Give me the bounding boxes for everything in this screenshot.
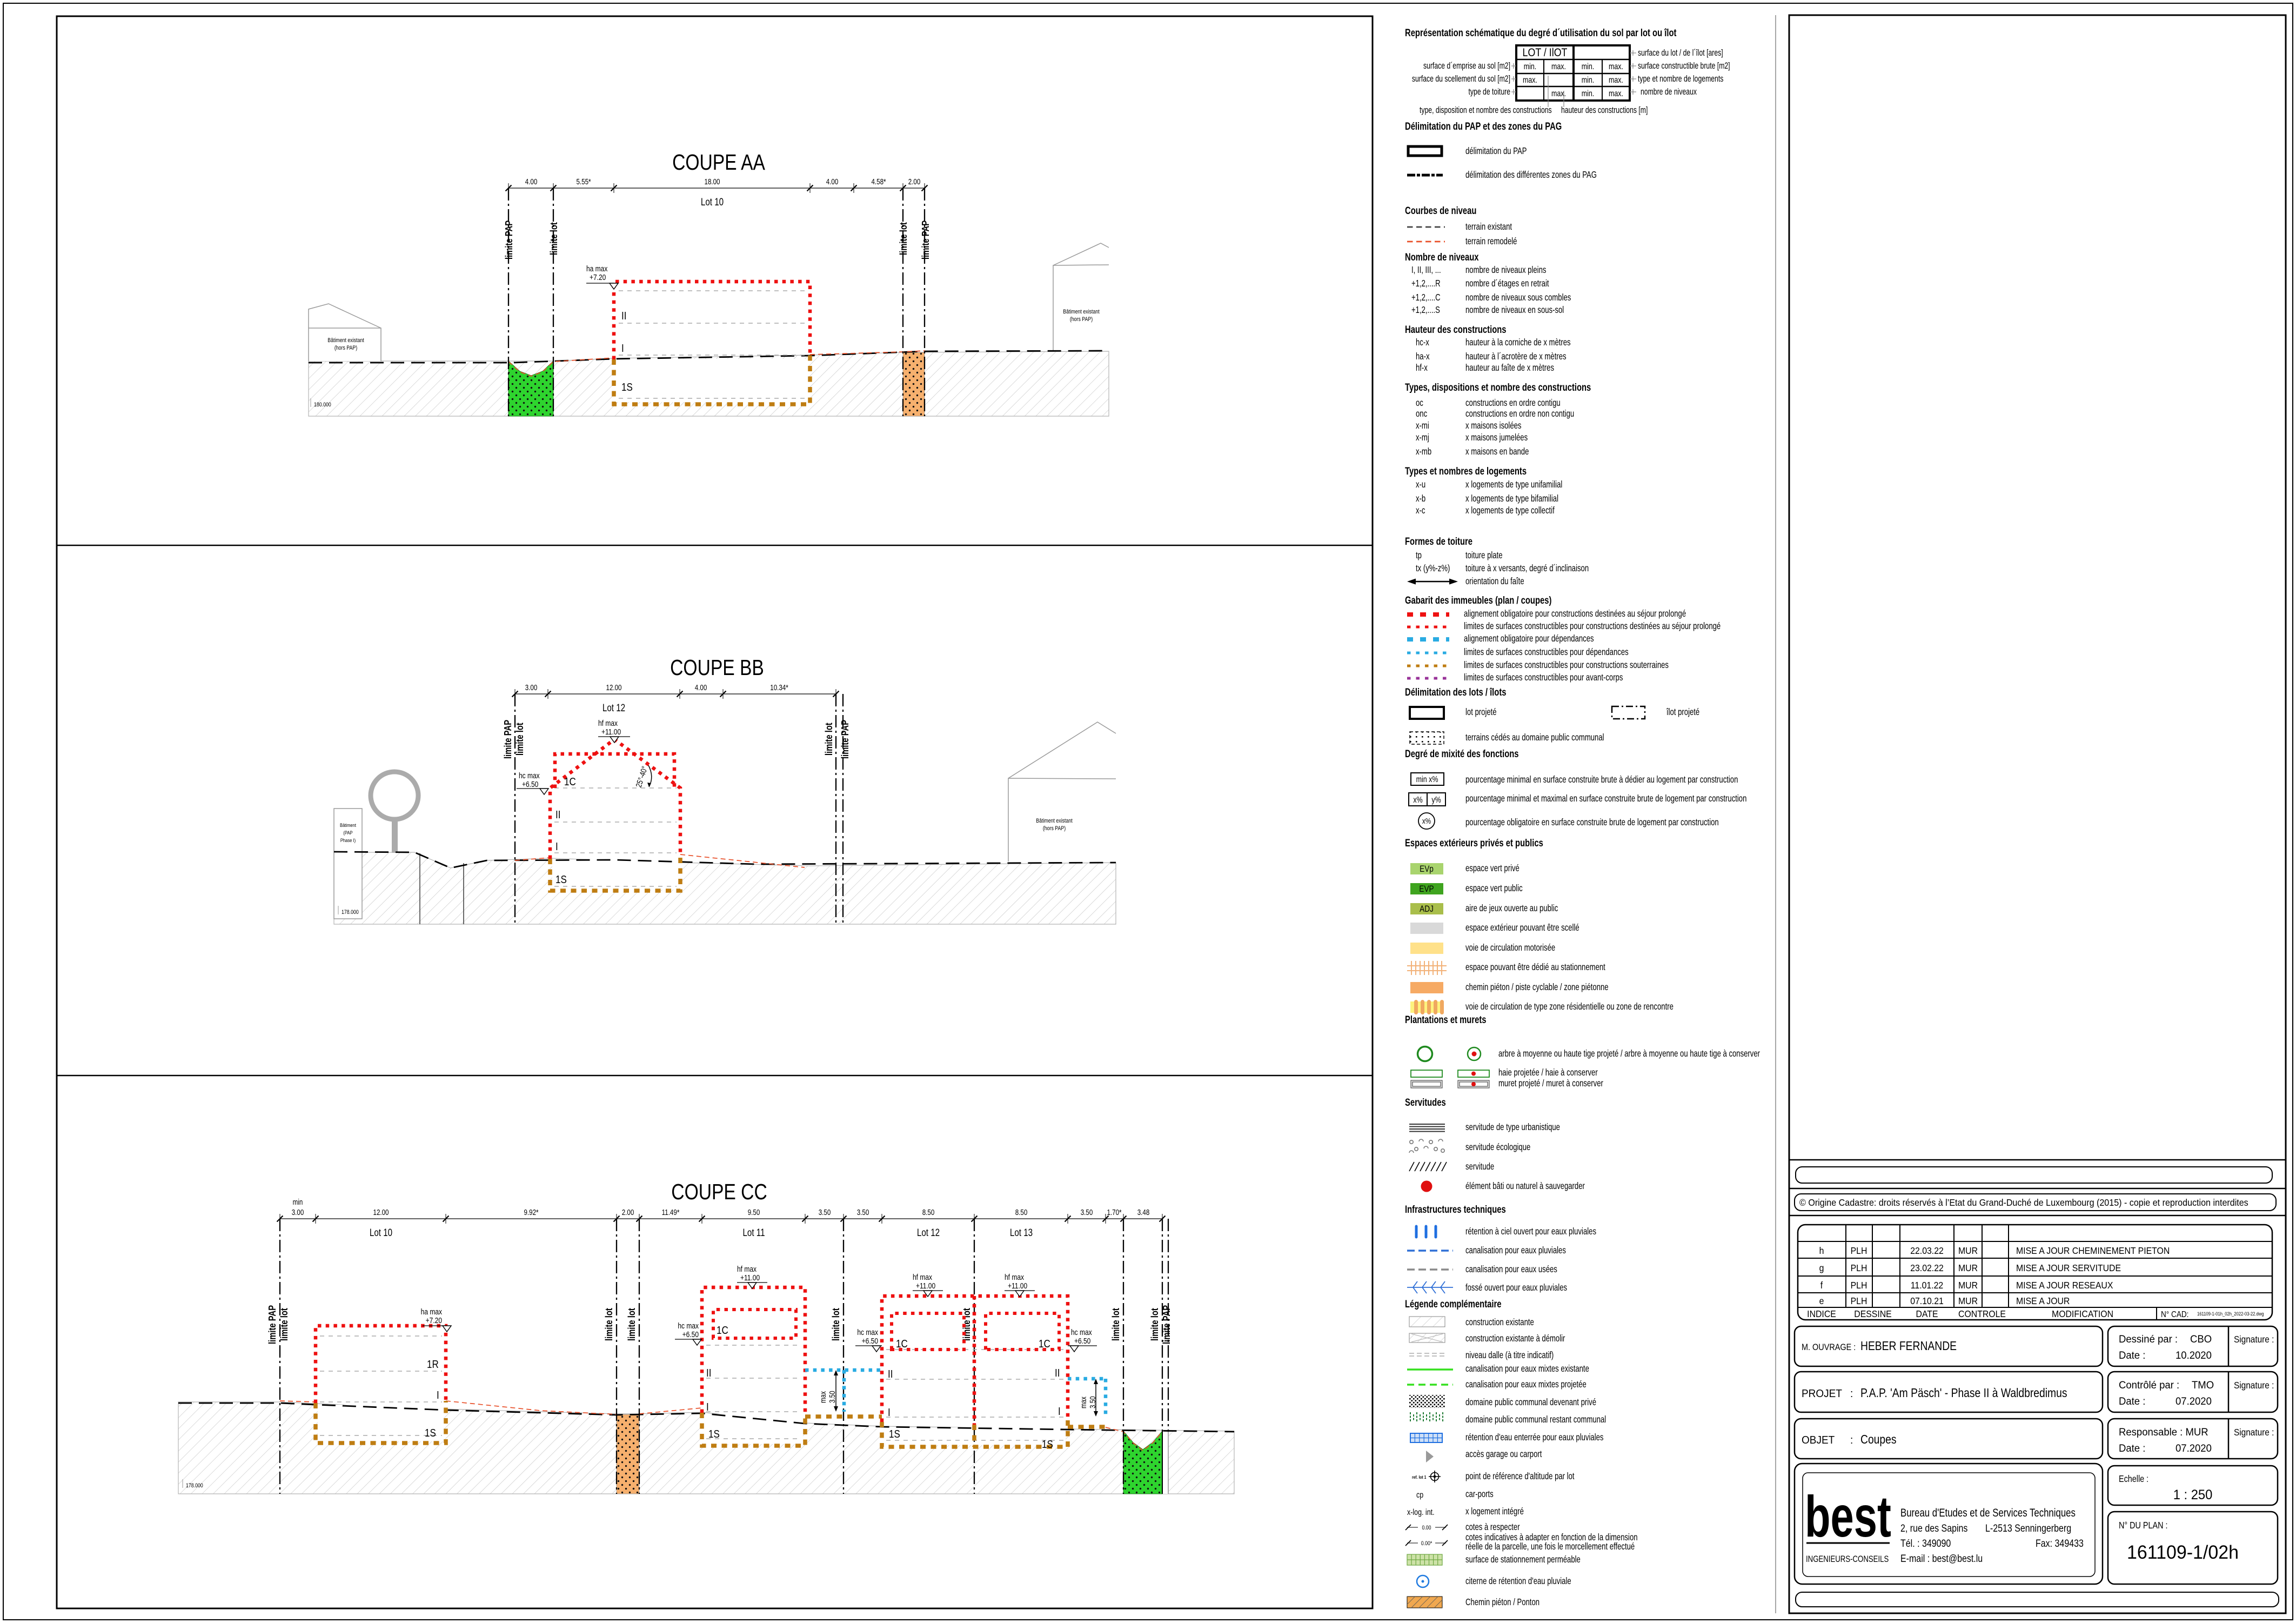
svg-text:Bâtiment existant: Bâtiment existant xyxy=(1036,818,1073,824)
svg-text:Bâtiment existant: Bâtiment existant xyxy=(327,337,364,344)
svg-text:muret projeté / muret à conser: muret projeté / muret à conserver xyxy=(1498,1078,1603,1088)
svg-text::: : xyxy=(1850,1388,1853,1400)
svg-text:N° DU PLAN :: N° DU PLAN : xyxy=(2119,1520,2167,1531)
svg-text:07.2020: 07.2020 xyxy=(2175,1396,2212,1408)
svg-text:HEBER FERNANDE: HEBER FERNANDE xyxy=(1860,1340,1957,1353)
svg-text:domaine public communal devena: domaine public communal devenant privé xyxy=(1465,1397,1596,1407)
svg-text:+11.00: +11.00 xyxy=(740,1273,760,1283)
svg-text:PROJET: PROJET xyxy=(1802,1388,1842,1400)
svg-text:Bâtiment existant: Bâtiment existant xyxy=(1063,309,1100,315)
svg-text:II: II xyxy=(1055,1367,1060,1379)
svg-text:Espaces extérieurs privés et p: Espaces extérieurs privés et publics xyxy=(1405,837,1543,849)
svg-text::: : xyxy=(1850,1434,1853,1447)
svg-text:18.00: 18.00 xyxy=(704,177,720,186)
svg-text:point de référence d'altitude: point de référence d'altitude par lot xyxy=(1465,1471,1575,1481)
svg-text:DESSINE: DESSINE xyxy=(1854,1308,1891,1319)
svg-text:I: I xyxy=(437,1389,439,1401)
svg-text:limite lot: limite lot xyxy=(548,222,559,255)
svg-text:type, disposition et nombre de: type, disposition et nombre des construc… xyxy=(1420,105,1552,115)
svg-text:min: min xyxy=(293,1198,303,1207)
svg-text:max.: max. xyxy=(1609,76,1623,85)
svg-text:espace vert public: espace vert public xyxy=(1465,883,1523,893)
svg-text:min.: min. xyxy=(1582,76,1595,85)
svg-text:P.A.P. 'Am Päsch' - Phase II à: P.A.P. 'Am Päsch' - Phase II à Waldbredi… xyxy=(1860,1387,2067,1400)
svg-text:servitude écologique: servitude écologique xyxy=(1465,1142,1530,1152)
svg-text:rétention d'eau enterrée pour: rétention d'eau enterrée pour eaux pluvi… xyxy=(1465,1432,1604,1442)
svg-text:servitude: servitude xyxy=(1465,1161,1494,1172)
svg-text:1S: 1S xyxy=(555,873,567,886)
svg-text:Légende complémentaire: Légende complémentaire xyxy=(1405,1298,1501,1310)
svg-text:max: max xyxy=(819,1391,828,1403)
svg-text:hc max: hc max xyxy=(1071,1328,1092,1337)
svg-text:CONTROLE: CONTROLE xyxy=(1958,1308,2006,1319)
svg-text:Hauteur des constructions: Hauteur des constructions xyxy=(1405,324,1507,335)
svg-text:2.00: 2.00 xyxy=(908,177,921,186)
svg-text:arbre à moyenne ou haute tige: arbre à moyenne ou haute tige projeté / … xyxy=(1498,1048,1760,1059)
svg-text:limite lot: limite lot xyxy=(1149,1308,1160,1341)
svg-text:cp: cp xyxy=(1416,1491,1423,1500)
svg-text:4.00: 4.00 xyxy=(695,683,707,692)
svg-text:180.000: 180.000 xyxy=(314,402,331,408)
svg-text:Degré de mixité des fonctions: Degré de mixité des fonctions xyxy=(1405,748,1519,759)
svg-text:11.01.22: 11.01.22 xyxy=(1911,1280,1943,1291)
svg-text:Lot 13: Lot 13 xyxy=(1010,1226,1033,1238)
svg-text:h: h xyxy=(1819,1245,1824,1256)
svg-text:citerne de rétention d'eau plu: citerne de rétention d'eau pluviale xyxy=(1465,1576,1571,1586)
svg-text:MODIFICATION: MODIFICATION xyxy=(2052,1308,2113,1319)
svg-text:ha max: ha max xyxy=(586,264,608,273)
svg-text:MUR: MUR xyxy=(1958,1280,1978,1291)
svg-text:+11.00: +11.00 xyxy=(601,727,621,737)
svg-text:EVp: EVp xyxy=(1420,864,1434,874)
svg-text:pourcentage minimal en surface: pourcentage minimal en surface construit… xyxy=(1465,774,1738,785)
svg-text:nombre de niveaux: nombre de niveaux xyxy=(1641,87,1697,97)
svg-text:Lot 10: Lot 10 xyxy=(701,196,724,208)
svg-text:limites de surfaces constructi: limites de surfaces constructibles pour … xyxy=(1464,672,1623,683)
svg-text:x maisons en bande: x maisons en bande xyxy=(1465,446,1529,457)
svg-text:limite lot: limite lot xyxy=(626,1308,637,1341)
svg-text:I: I xyxy=(888,1406,891,1419)
svg-text:1S: 1S xyxy=(708,1428,720,1440)
svg-text:I: I xyxy=(621,342,624,355)
svg-text:canalisation pour eaux usées: canalisation pour eaux usées xyxy=(1465,1264,1557,1274)
svg-text:N° CAD:: N° CAD: xyxy=(2161,1310,2188,1319)
svg-text:1R: 1R xyxy=(427,1358,439,1371)
svg-text:x logement intégré: x logement intégré xyxy=(1465,1506,1524,1517)
svg-text:pourcentage obligatoire en sur: pourcentage obligatoire en surface const… xyxy=(1465,817,1719,827)
svg-text:Echelle :: Echelle : xyxy=(2119,1474,2148,1485)
svg-text:nombre de niveaux sous combles: nombre de niveaux sous combles xyxy=(1465,292,1571,303)
svg-text:accès garage ou carport: accès garage ou carport xyxy=(1465,1449,1542,1459)
svg-text:1S: 1S xyxy=(425,1427,436,1439)
svg-text:+1,2,....C: +1,2,....C xyxy=(1411,292,1441,303)
svg-text:e: e xyxy=(1819,1295,1824,1306)
svg-text:+6.50: +6.50 xyxy=(522,780,539,789)
svg-text:max.: max. xyxy=(1523,76,1537,85)
svg-text:Signature :: Signature : xyxy=(2234,1427,2274,1438)
svg-text:limite PAP: limite PAP xyxy=(266,1305,278,1344)
svg-text:L-2513 Senningerberg: L-2513 Senningerberg xyxy=(1985,1522,2071,1534)
svg-text:f: f xyxy=(1820,1280,1823,1291)
svg-text:canalisation pour eaux pluvial: canalisation pour eaux pluviales xyxy=(1465,1245,1566,1255)
svg-text:limites de surfaces constructi: limites de surfaces constructibles pour … xyxy=(1464,647,1629,657)
svg-text:12.00: 12.00 xyxy=(373,1208,389,1217)
svg-text:Date :: Date : xyxy=(2119,1350,2145,1362)
svg-text:délimitation des différentes z: délimitation des différentes zones du PA… xyxy=(1465,170,1597,180)
svg-text:161109-1-01h_02h_2022-03-22.dw: 161109-1-01h_02h_2022-03-22.dwg xyxy=(2197,1311,2264,1317)
svg-text:PLH: PLH xyxy=(1851,1245,1867,1256)
svg-text:terrain remodelé: terrain remodelé xyxy=(1465,236,1517,246)
svg-text:limites de surfaces constructi: limites de surfaces constructibles pour … xyxy=(1464,621,1721,631)
svg-text:Bureau d'Etudes et de Services: Bureau d'Etudes et de Services Technique… xyxy=(1900,1507,2076,1519)
svg-text:x logements de type unifamilia: x logements de type unifamilial xyxy=(1465,479,1562,490)
svg-text:limite lot: limite lot xyxy=(823,723,834,756)
svg-text:MUR: MUR xyxy=(1958,1295,1978,1306)
svg-text:CBO: CBO xyxy=(2190,1334,2212,1346)
svg-text:alignement obligatoire pour dé: alignement obligatoire pour dépendances xyxy=(1464,633,1594,644)
svg-text:MUR: MUR xyxy=(1958,1245,1978,1256)
svg-text:1C: 1C xyxy=(717,1324,728,1337)
svg-text:espace extérieur pouvant être: espace extérieur pouvant être scellé xyxy=(1465,923,1579,933)
svg-text:tx (y%-z%): tx (y%-z%) xyxy=(1416,563,1450,573)
svg-text:161109-1/02h: 161109-1/02h xyxy=(2127,1542,2239,1564)
svg-text:niveau dalle (à titre indicati: niveau dalle (à titre indicatif) xyxy=(1465,1350,1554,1360)
svg-text:surface du scellement du sol [: surface du scellement du sol [m2] xyxy=(1412,74,1510,84)
svg-text:Courbes de niveau: Courbes de niveau xyxy=(1405,205,1476,216)
svg-text:5.55*: 5.55* xyxy=(576,177,591,186)
svg-text:Dessiné par :: Dessiné par : xyxy=(2119,1334,2178,1346)
svg-text:Contrôlé par :: Contrôlé par : xyxy=(2119,1380,2179,1392)
svg-text:(PAP: (PAP xyxy=(343,830,352,836)
svg-text:10.34*: 10.34* xyxy=(770,683,788,692)
svg-text:4.58*: 4.58* xyxy=(871,177,886,186)
svg-text:oc: oc xyxy=(1416,398,1423,408)
svg-text:chemin piéton / piste cyclable: chemin piéton / piste cyclable / zone pi… xyxy=(1465,982,1609,992)
svg-text:limite PAP: limite PAP xyxy=(503,221,514,259)
svg-text:Responsable : MUR: Responsable : MUR xyxy=(2119,1427,2208,1439)
svg-text:I: I xyxy=(555,840,558,853)
svg-text:canalisation pour eaux mixtes: canalisation pour eaux mixtes projetée xyxy=(1465,1379,1587,1390)
svg-text:x-b: x-b xyxy=(1416,493,1425,504)
svg-text:espace pouvant être dédié au s: espace pouvant être dédié au stationneme… xyxy=(1465,962,1605,972)
svg-text:+11.00: +11.00 xyxy=(916,1281,936,1291)
svg-text:MISE A JOUR CHEMINEMENT PIETON: MISE A JOUR CHEMINEMENT PIETON xyxy=(2016,1245,2170,1256)
svg-text:limite PAP: limite PAP xyxy=(1161,1305,1172,1344)
svg-text:1S: 1S xyxy=(1042,1438,1053,1451)
svg-text:(hors PAP): (hors PAP) xyxy=(334,345,357,351)
svg-text:1S: 1S xyxy=(889,1428,900,1440)
svg-text:Fax: 349433: Fax: 349433 xyxy=(2036,1538,2084,1549)
svg-text:terrain existant: terrain existant xyxy=(1465,222,1512,232)
svg-text:x-mb: x-mb xyxy=(1416,446,1431,457)
svg-text:best: best xyxy=(1805,1484,1891,1549)
svg-text:+1,2,....R: +1,2,....R xyxy=(1411,278,1441,289)
svg-text:Lot 12: Lot 12 xyxy=(917,1226,940,1238)
svg-text:toiture à x versants, degré d´: toiture à x versants, degré d´inclinaiso… xyxy=(1465,563,1589,573)
svg-text:limite lot: limite lot xyxy=(830,1308,841,1341)
svg-text:Types et nombres de logements: Types et nombres de logements xyxy=(1405,465,1527,477)
svg-text:fossé ouvert pour eaux pluvial: fossé ouvert pour eaux pluviales xyxy=(1465,1283,1567,1293)
svg-text:max.: max. xyxy=(1609,62,1623,72)
svg-text:surface du lot / de l´îlot [ar: surface du lot / de l´îlot [ares] xyxy=(1638,48,1723,58)
svg-text:Nombre de niveaux: Nombre de niveaux xyxy=(1405,251,1479,263)
svg-text:réelle de la parcelle, une foi: réelle de la parcelle, une fois le morce… xyxy=(1465,1541,1635,1552)
svg-text:x-mi: x-mi xyxy=(1416,420,1429,431)
svg-text:MISE A JOUR RESEAUX: MISE A JOUR RESEAUX xyxy=(2016,1280,2113,1291)
svg-text:EVP: EVP xyxy=(1419,884,1434,894)
svg-text:Tél. : 349090: Tél. : 349090 xyxy=(1900,1538,1951,1549)
svg-text:3.50: 3.50 xyxy=(828,1391,837,1403)
svg-text:Servitudes: Servitudes xyxy=(1405,1097,1446,1108)
svg-text:Signature :: Signature : xyxy=(2234,1380,2274,1391)
svg-text:min.: min. xyxy=(1582,89,1595,99)
svg-text:Délimitation du PAP et des zon: Délimitation du PAP et des zones du PAG xyxy=(1405,121,1562,132)
svg-text:construction existante: construction existante xyxy=(1465,1317,1534,1327)
svg-text:aire de jeux ouverte au public: aire de jeux ouverte au public xyxy=(1465,903,1558,913)
svg-text:surface d´emprise au sol [m2]: surface d´emprise au sol [m2] xyxy=(1423,61,1510,71)
svg-text:hauteur au faîte de x mètres: hauteur au faîte de x mètres xyxy=(1465,363,1554,373)
svg-text:Coupes: Coupes xyxy=(1860,1433,1897,1447)
svg-text:07.2020: 07.2020 xyxy=(2175,1443,2212,1455)
svg-text:x logements de type bifamilial: x logements de type bifamilial xyxy=(1465,493,1558,504)
svg-text:tp: tp xyxy=(1416,550,1422,560)
svg-text:x maisons jumelées: x maisons jumelées xyxy=(1465,432,1528,443)
svg-text:Date :: Date : xyxy=(2119,1396,2145,1408)
svg-text:limite PAP: limite PAP xyxy=(839,720,851,759)
svg-text:Lot 11: Lot 11 xyxy=(742,1226,765,1238)
svg-text:hauteur à l´acrotère de x mètr: hauteur à l´acrotère de x mètres xyxy=(1465,351,1567,362)
svg-text:12.00: 12.00 xyxy=(606,683,621,692)
svg-text:3.00: 3.00 xyxy=(292,1208,304,1217)
svg-text:orientation du faîte: orientation du faîte xyxy=(1465,576,1524,586)
svg-text:hauteur des constructions [m]: hauteur des constructions [m] xyxy=(1561,105,1648,115)
svg-text:ha-x: ha-x xyxy=(1416,351,1430,362)
svg-text:Date :: Date : xyxy=(2119,1443,2145,1455)
svg-text:haie projetée / haie à conserv: haie projetée / haie à conserver xyxy=(1498,1067,1598,1078)
svg-text:voie de circulation de type zo: voie de circulation de type zone résiden… xyxy=(1465,1001,1674,1012)
svg-text:Infrastructures techniques: Infrastructures techniques xyxy=(1405,1204,1506,1215)
svg-text:espace vert privé: espace vert privé xyxy=(1465,863,1519,873)
svg-text:I: I xyxy=(1058,1405,1061,1418)
svg-text:COUPE AA: COUPE AA xyxy=(672,150,765,175)
svg-text:limite lot: limite lot xyxy=(603,1308,614,1341)
svg-text:surface de stationnement permé: surface de stationnement perméable xyxy=(1465,1554,1581,1565)
svg-text:COUPE BB: COUPE BB xyxy=(670,655,764,680)
svg-text:cotes à respecter: cotes à respecter xyxy=(1465,1522,1520,1532)
svg-text:INGENIEURS-CONSEILS: INGENIEURS-CONSEILS xyxy=(1806,1554,1889,1565)
svg-text:constructions en ordre contigu: constructions en ordre contigu xyxy=(1465,398,1561,408)
svg-text:M. OUVRAGE :: M. OUVRAGE : xyxy=(1802,1343,1856,1352)
svg-text:© Origine Cadastre: droits rés: © Origine Cadastre: droits réservés à l’… xyxy=(1799,1197,2248,1208)
svg-text:11.49*: 11.49* xyxy=(662,1208,680,1217)
svg-text:x%: x% xyxy=(1413,796,1423,805)
svg-text:Lot 10: Lot 10 xyxy=(370,1226,392,1238)
svg-text:ref. lot 1: ref. lot 1 xyxy=(1412,1474,1427,1480)
svg-text:délimitation du PAP: délimitation du PAP xyxy=(1465,146,1527,156)
svg-text:8.50: 8.50 xyxy=(1015,1208,1028,1217)
svg-text:LOT / IlOT: LOT / IlOT xyxy=(1523,46,1568,59)
svg-text:x%: x% xyxy=(1422,817,1431,826)
svg-text:Types, dispositions et nombre: Types, dispositions et nombre des constr… xyxy=(1405,382,1591,393)
svg-text:0.00*: 0.00* xyxy=(1421,1540,1433,1547)
svg-text:domaine public communal restan: domaine public communal restant communal xyxy=(1465,1414,1606,1425)
svg-text:y%: y% xyxy=(1431,796,1441,805)
svg-text:+1,2,....S: +1,2,....S xyxy=(1411,305,1440,315)
svg-text:limite lot: limite lot xyxy=(1110,1308,1121,1341)
svg-text:x-mj: x-mj xyxy=(1416,432,1429,443)
svg-text:max.: max. xyxy=(1551,62,1566,72)
svg-text:I, II, III, ...: I, II, III, ... xyxy=(1411,265,1441,275)
svg-text:hf max: hf max xyxy=(598,719,618,728)
svg-text:construction existante à démol: construction existante à démolir xyxy=(1465,1333,1565,1344)
svg-text:hauteur à la corniche de x mèt: hauteur à la corniche de x mètres xyxy=(1465,337,1571,348)
svg-text:nombre de niveaux pleins: nombre de niveaux pleins xyxy=(1465,265,1547,275)
svg-text:nombre d´étages en retrait: nombre d´étages en retrait xyxy=(1465,278,1549,289)
svg-text:ha max: ha max xyxy=(421,1307,443,1317)
svg-text:hf-x: hf-x xyxy=(1416,363,1428,373)
svg-text:(hors PAP): (hors PAP) xyxy=(1070,316,1093,323)
svg-text:+6.50: +6.50 xyxy=(682,1330,699,1339)
svg-text:x-c: x-c xyxy=(1416,505,1425,516)
svg-text:3.48: 3.48 xyxy=(1137,1208,1150,1217)
svg-text:9.92*: 9.92* xyxy=(524,1208,538,1217)
svg-text:hc max: hc max xyxy=(678,1321,699,1331)
svg-text:MISE A JOUR: MISE A JOUR xyxy=(2016,1295,2070,1306)
svg-text:voie de circulation motorisée: voie de circulation motorisée xyxy=(1465,943,1555,953)
svg-text:23.02.22: 23.02.22 xyxy=(1910,1263,1944,1273)
svg-text:3.50: 3.50 xyxy=(1081,1208,1093,1217)
svg-text:nombre de niveaux en sous-sol: nombre de niveaux en sous-sol xyxy=(1465,305,1564,315)
svg-text:car-ports: car-ports xyxy=(1465,1489,1494,1499)
svg-text:II: II xyxy=(555,809,560,821)
svg-text:OBJET: OBJET xyxy=(1802,1434,1835,1447)
svg-text:îlot projeté: îlot projeté xyxy=(1666,707,1699,717)
svg-text:toiture plate: toiture plate xyxy=(1465,550,1503,560)
svg-text:0.00: 0.00 xyxy=(1422,1525,1431,1531)
svg-text:8.50: 8.50 xyxy=(922,1208,935,1217)
svg-text:4.00: 4.00 xyxy=(826,177,839,186)
svg-text:min x%: min x% xyxy=(1416,775,1438,785)
svg-text:10.2020: 10.2020 xyxy=(2175,1350,2212,1362)
svg-text:rétention à ciel ouvert pour e: rétention à ciel ouvert pour eaux pluvia… xyxy=(1465,1226,1596,1237)
svg-text:1 : 250: 1 : 250 xyxy=(2173,1487,2213,1502)
svg-text:TMO: TMO xyxy=(2192,1380,2214,1392)
svg-text:limite lot: limite lot xyxy=(514,723,525,756)
svg-text:hc-x: hc-x xyxy=(1416,337,1429,348)
svg-text:hc max: hc max xyxy=(519,771,540,780)
svg-text:Signature :: Signature : xyxy=(2234,1334,2274,1345)
svg-text:pourcentage minimal et maximal: pourcentage minimal et maximal en surfac… xyxy=(1465,793,1746,804)
svg-text:max: max xyxy=(1079,1397,1088,1408)
svg-text:II: II xyxy=(706,1367,711,1379)
svg-text:1C: 1C xyxy=(1039,1338,1050,1350)
svg-text:limites de surfaces constructi: limites de surfaces constructibles pour … xyxy=(1464,660,1669,670)
svg-text:1C: 1C xyxy=(896,1338,908,1350)
svg-text:Plantations et murets: Plantations et murets xyxy=(1405,1014,1487,1025)
svg-text:Formes de toiture: Formes de toiture xyxy=(1405,536,1472,547)
svg-text:3.00: 3.00 xyxy=(525,683,538,692)
svg-text:onc: onc xyxy=(1416,409,1427,419)
svg-text:hc max: hc max xyxy=(857,1328,878,1337)
svg-text:limite lot: limite lot xyxy=(898,222,909,255)
svg-text:MISE A JOUR SERVITUDE: MISE A JOUR SERVITUDE xyxy=(2016,1263,2121,1273)
svg-text:Lot 12: Lot 12 xyxy=(603,702,625,713)
svg-text:limite PAP: limite PAP xyxy=(920,221,931,259)
svg-text:x-u: x-u xyxy=(1416,479,1425,490)
svg-text:type de toiture: type de toiture xyxy=(1469,87,1510,97)
svg-text:min.: min. xyxy=(1524,62,1537,72)
svg-text:hf max: hf max xyxy=(913,1273,932,1282)
svg-text:1.70*: 1.70* xyxy=(1107,1208,1121,1217)
svg-text:3.50: 3.50 xyxy=(819,1208,831,1217)
svg-text:PLH: PLH xyxy=(1851,1295,1867,1306)
svg-text:(hors PAP): (hors PAP) xyxy=(1043,825,1066,832)
svg-text:x-log. int.: x-log. int. xyxy=(1407,1508,1435,1518)
svg-text:max.: max. xyxy=(1609,89,1623,99)
svg-text:DATE: DATE xyxy=(1916,1308,1938,1319)
svg-text:+11.00: +11.00 xyxy=(1008,1281,1028,1291)
svg-text:Chemin piéton / Ponton: Chemin piéton / Ponton xyxy=(1465,1597,1539,1607)
svg-text:3.50: 3.50 xyxy=(857,1208,869,1217)
svg-text:g: g xyxy=(1819,1263,1824,1273)
svg-text:type et nombre de logements: type et nombre de logements xyxy=(1638,74,1723,84)
svg-text:servitude de type urbanistique: servitude de type urbanistique xyxy=(1465,1122,1560,1132)
svg-text:hf max: hf max xyxy=(737,1265,757,1274)
svg-text:Bâtiment: Bâtiment xyxy=(340,822,357,828)
svg-text:+7.20: +7.20 xyxy=(426,1316,443,1325)
svg-text:COUPE CC: COUPE CC xyxy=(671,1179,767,1204)
svg-text:Gabarit des immeubles (plan /: Gabarit des immeubles (plan / coupes) xyxy=(1405,595,1551,606)
svg-text:9.50: 9.50 xyxy=(748,1208,760,1217)
svg-text:hf max: hf max xyxy=(1005,1273,1024,1282)
svg-text:surface constructible brute [m: surface constructible brute [m2] xyxy=(1638,61,1730,71)
svg-text:2, rue des Sapins: 2, rue des Sapins xyxy=(1900,1522,1967,1534)
svg-text:22.03.22: 22.03.22 xyxy=(1910,1245,1944,1256)
svg-text:I: I xyxy=(706,1401,709,1413)
svg-text:3.50: 3.50 xyxy=(1088,1396,1097,1408)
svg-text:min.: min. xyxy=(1582,62,1595,72)
svg-text:II: II xyxy=(621,310,626,322)
svg-text:limite lot: limite lot xyxy=(278,1308,290,1341)
svg-text:x maisons isolées: x maisons isolées xyxy=(1465,420,1522,431)
svg-text:INDICE: INDICE xyxy=(1807,1308,1836,1319)
svg-text:constructions en ordre non con: constructions en ordre non contigu xyxy=(1465,409,1574,419)
svg-text:E-mail : best@best.lu: E-mail : best@best.lu xyxy=(1900,1553,1983,1565)
svg-text:terrains cédés au domaine publ: terrains cédés au domaine public communa… xyxy=(1465,732,1604,743)
svg-text:MUR: MUR xyxy=(1958,1263,1978,1273)
svg-text:alignement obligatoire pour co: alignement obligatoire pour construction… xyxy=(1464,609,1686,619)
svg-text:+6.50: +6.50 xyxy=(862,1337,879,1346)
svg-text:PLH: PLH xyxy=(1851,1280,1867,1291)
svg-text:limite PAP: limite PAP xyxy=(502,720,513,759)
svg-text:Phase I): Phase I) xyxy=(340,837,356,843)
svg-text:Délimitation des lots / îlots: Délimitation des lots / îlots xyxy=(1405,686,1506,698)
svg-text:II: II xyxy=(888,1368,893,1380)
svg-text:+7.20: +7.20 xyxy=(590,273,606,282)
svg-text:x logements de type collectif: x logements de type collectif xyxy=(1465,505,1555,516)
svg-text:PLH: PLH xyxy=(1851,1263,1867,1273)
svg-text:ADJ: ADJ xyxy=(1420,904,1434,914)
svg-text:Représentation schématique du: Représentation schématique du degré d´ut… xyxy=(1405,27,1677,38)
svg-text:07.10.21: 07.10.21 xyxy=(1910,1295,1944,1306)
svg-text:+6.50: +6.50 xyxy=(1074,1337,1091,1346)
svg-text:élément bâti ou naturel à sauv: élément bâti ou naturel à sauvegarder xyxy=(1465,1181,1585,1191)
svg-text:178.000: 178.000 xyxy=(342,909,359,916)
svg-text:lot projeté: lot projeté xyxy=(1465,707,1497,717)
svg-text:178.000: 178.000 xyxy=(186,1482,203,1489)
svg-text:canalisation pour eaux mixtes: canalisation pour eaux mixtes existante xyxy=(1465,1364,1589,1374)
svg-text:4.00: 4.00 xyxy=(525,177,538,186)
